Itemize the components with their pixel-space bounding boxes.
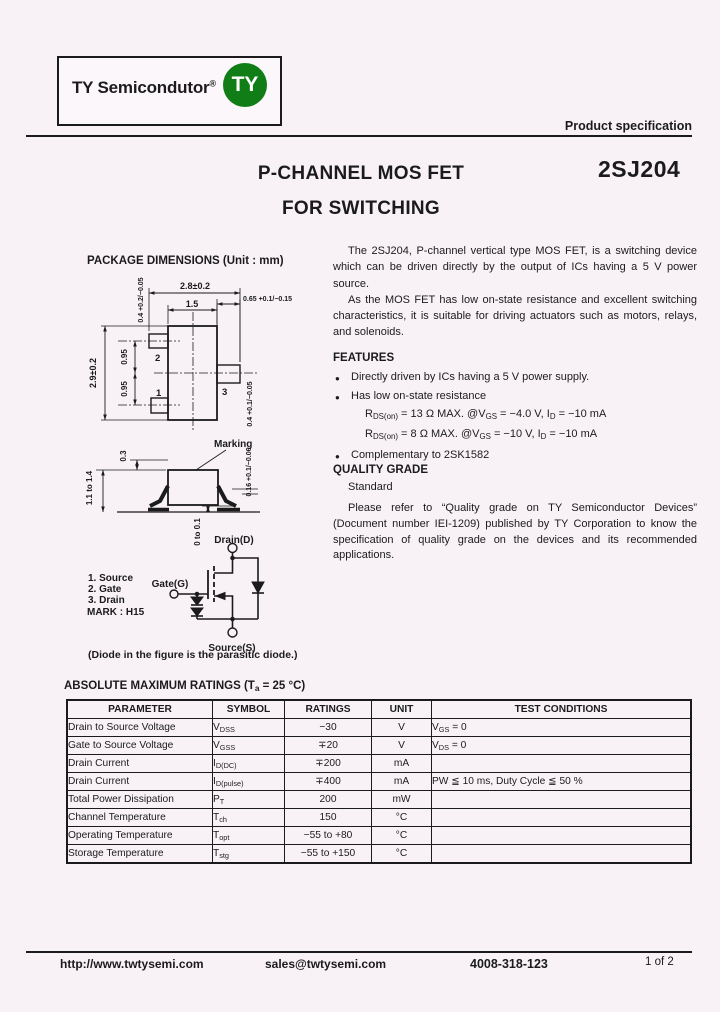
features-heading: FEATURES [333, 352, 697, 364]
cell-rating: 200 [285, 791, 372, 809]
intro-section: The 2SJ204, P-channel vertical type MOS … [333, 243, 697, 341]
quality-grade-heading: QUALITY GRADE [333, 464, 697, 476]
cell-parameter: Drain Current [67, 773, 213, 791]
pin3-number: 3 [222, 387, 227, 398]
cell-condition: VGS = 0 [432, 719, 692, 737]
cell-rating: −55 to +150 [285, 845, 372, 864]
bullet-icon: ● [335, 391, 340, 404]
brand-badge-icon: TY [223, 63, 267, 107]
ratings-heading: ABSOLUTE MAXIMUM RATINGS (Ta = 25 °C) [64, 680, 305, 693]
brand-logo-box: TY Semicondutor® TY [57, 56, 282, 126]
feature-rds-on-2: RDS(on) = 8 Ω MAX. @VGS = −10 V, ID = −1… [365, 428, 697, 443]
datasheet-page: { "header": { "brand": "TY Semicondutor"… [0, 0, 720, 1012]
cell-parameter: Channel Temperature [67, 809, 213, 827]
features-section: FEATURES ●Directly driven by ICs having … [333, 352, 697, 462]
dim-lead3-length: 0.65 +0.1/−0.15 [243, 296, 292, 303]
feature-text: Directly driven by ICs having a 5 V powe… [351, 371, 589, 383]
package-top-view-drawing: 2.8±0.2 1.5 0.65 +0.1/−0.15 2.9±0.2 0.95… [56, 254, 324, 436]
gate-diode2-icon [191, 608, 203, 616]
cell-parameter: Total Power Dissipation [67, 791, 213, 809]
table-row: Storage Temperature Tstg −55 to +150 °C [67, 845, 691, 864]
gate-terminal-label: Gate(G) [152, 579, 189, 590]
doc-title-line1: P-CHANNEL MOS FET [231, 163, 491, 185]
dim-pitch-lower: 0.95 [120, 381, 129, 397]
cell-unit: mA [372, 773, 432, 791]
column-header: SYMBOL [213, 700, 285, 719]
table-header-row: PARAMETER SYMBOL RATINGS UNIT TEST CONDI… [67, 700, 691, 719]
dim-marking-offset: 0.3 [119, 450, 128, 462]
feature-rds-on-1: RDS(on) = 13 Ω MAX. @VGS = −4.0 V, ID = … [365, 408, 697, 423]
cell-unit: V [372, 719, 432, 737]
footer-rule [26, 951, 692, 953]
feature-text: Complementary to 2SK1582 [351, 449, 489, 461]
footer-email: sales@twtysemi.com [265, 957, 386, 971]
column-header: TEST CONDITIONS [432, 700, 692, 719]
equivalent-circuit-drawing: Drain(D) Gate(G) Source(S) 1. Source 2. … [56, 518, 324, 660]
ratings-table: PARAMETER SYMBOL RATINGS UNIT TEST CONDI… [66, 699, 692, 864]
cell-parameter: Drain Current [67, 755, 213, 773]
intro-paragraph-1: The 2SJ204, P-channel vertical type MOS … [333, 243, 697, 292]
cell-condition [432, 791, 692, 809]
footer-website: http://www.twtysemi.com [60, 957, 204, 971]
footer-phone: 4008-318-123 [470, 957, 548, 971]
pin-list-1: 1. Source [88, 573, 133, 584]
mark-code: MARK : H15 [87, 607, 145, 618]
feature-item: ●Complementary to 2SK1582 [333, 449, 697, 462]
dim-body-width: 1.5 [186, 299, 199, 309]
registered-mark: ® [209, 78, 215, 88]
dim-body-height: 2.9±0.2 [88, 358, 98, 388]
quality-grade-note: Please refer to “Quality grade on TY Sem… [333, 501, 697, 564]
gate-diode-icon [191, 597, 203, 605]
cell-symbol: VGSS [213, 737, 285, 755]
cell-symbol: Tstg [213, 845, 285, 864]
pin-list-2: 2. Gate [88, 584, 122, 595]
pin1-number: 1 [156, 388, 162, 399]
drain-terminal-label: Drain(D) [214, 535, 253, 546]
column-header: PARAMETER [67, 700, 213, 719]
circuit-wires [170, 544, 258, 638]
parasitic-diode-caption: (Diode in the figure is the parasitic di… [88, 649, 297, 661]
doc-title-line2: FOR SWITCHING [231, 198, 491, 220]
cell-unit: °C [372, 827, 432, 845]
cell-unit: V [372, 737, 432, 755]
bullet-icon: ● [335, 450, 340, 463]
feature-item: ●Has low on-state resistance [333, 390, 697, 403]
header-rule [26, 135, 692, 137]
cell-rating: −30 [285, 719, 372, 737]
body-arrow [216, 593, 225, 600]
table-row: Drain Current ID(DC) ∓200 mA [67, 755, 691, 773]
cell-symbol: Tch [213, 809, 285, 827]
cell-rating: 150 [285, 809, 372, 827]
cell-rating: ∓200 [285, 755, 372, 773]
bullet-icon: ● [335, 372, 340, 385]
column-header: UNIT [372, 700, 432, 719]
dim-lead-width-right: 0.4 +0.1/−0.05 [247, 381, 254, 426]
cell-rating: ∓20 [285, 737, 372, 755]
cell-condition [432, 845, 692, 864]
dim-lead-thickness: 0.16 +0.1/−0.06 [246, 447, 253, 496]
cell-parameter: Gate to Source Voltage [67, 737, 213, 755]
page-number: 1 of 2 [645, 956, 674, 968]
dim-lead-width-left: 0.4 +0.2/−0.05 [138, 277, 145, 322]
cell-unit: mW [372, 791, 432, 809]
cell-condition: VDS = 0 [432, 737, 692, 755]
cell-symbol: VDSS [213, 719, 285, 737]
dim-overall-width: 2.8±0.2 [180, 281, 210, 291]
dim-pitch-upper: 0.95 [120, 349, 129, 365]
cell-rating: −55 to +80 [285, 827, 372, 845]
cell-symbol: PT [213, 791, 285, 809]
table-row: Total Power Dissipation PT 200 mW [67, 791, 691, 809]
cell-symbol: ID(DC) [213, 755, 285, 773]
cell-unit: °C [372, 845, 432, 864]
cell-unit: °C [372, 809, 432, 827]
table-row: Drain Current ID(pulse) ∓400 mA PW ≦ 10 … [67, 773, 691, 791]
table-row: Drain to Source Voltage VDSS −30 V VGS =… [67, 719, 691, 737]
circuit-symbols [191, 556, 264, 621]
brand-name: TY Semicondutor® [72, 78, 216, 98]
parasitic-diode-icon [252, 582, 264, 593]
cell-symbol: ID(pulse) [213, 773, 285, 791]
cell-rating: ∓400 [285, 773, 372, 791]
feature-text: Has low on-state resistance [351, 390, 486, 402]
cell-condition: PW ≦ 10 ms, Duty Cycle ≦ 50 % [432, 773, 692, 791]
cell-condition [432, 827, 692, 845]
cell-symbol: Topt [213, 827, 285, 845]
table-row: Gate to Source Voltage VGSS ∓20 V VDS = … [67, 737, 691, 755]
cell-parameter: Operating Temperature [67, 827, 213, 845]
cell-condition [432, 755, 692, 773]
quality-grade-section: QUALITY GRADE Standard Please refer to “… [333, 464, 697, 564]
cell-parameter: Drain to Source Voltage [67, 719, 213, 737]
cell-condition [432, 809, 692, 827]
table-row: Channel Temperature Tch 150 °C [67, 809, 691, 827]
pin-list-3: 3. Drain [88, 595, 125, 606]
feature-item: ●Directly driven by ICs having a 5 V pow… [333, 371, 697, 384]
quality-grade-value: Standard [333, 481, 697, 493]
column-header: RATINGS [285, 700, 372, 719]
part-number: 2SJ204 [598, 156, 680, 183]
product-specification-label: Product specification [500, 119, 692, 133]
intro-paragraph-2: As the MOS FET has low on-state resistan… [333, 292, 697, 341]
dim-package-height: 1.1 to 1.4 [85, 470, 94, 505]
table-row: Operating Temperature Topt −55 to +80 °C [67, 827, 691, 845]
pin2-number: 2 [155, 353, 160, 364]
cell-unit: mA [372, 755, 432, 773]
cell-parameter: Storage Temperature [67, 845, 213, 864]
